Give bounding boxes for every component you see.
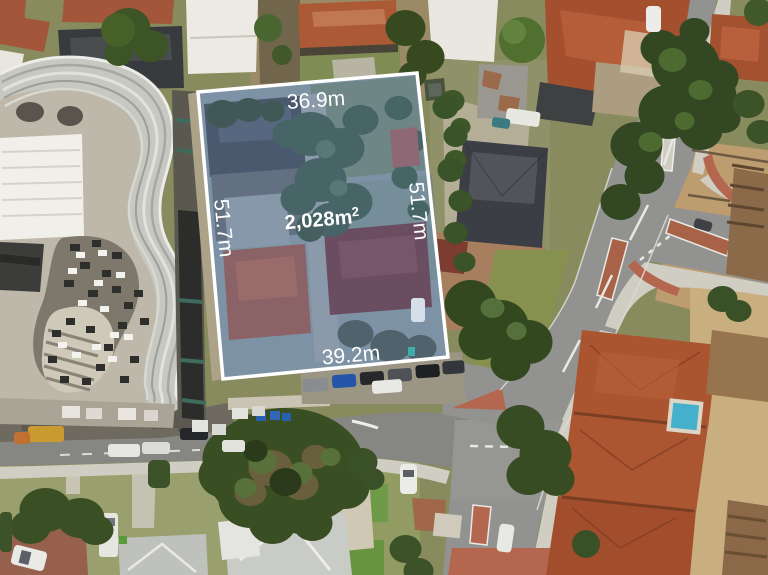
svg-text:36.9m: 36.9m [286, 87, 346, 114]
